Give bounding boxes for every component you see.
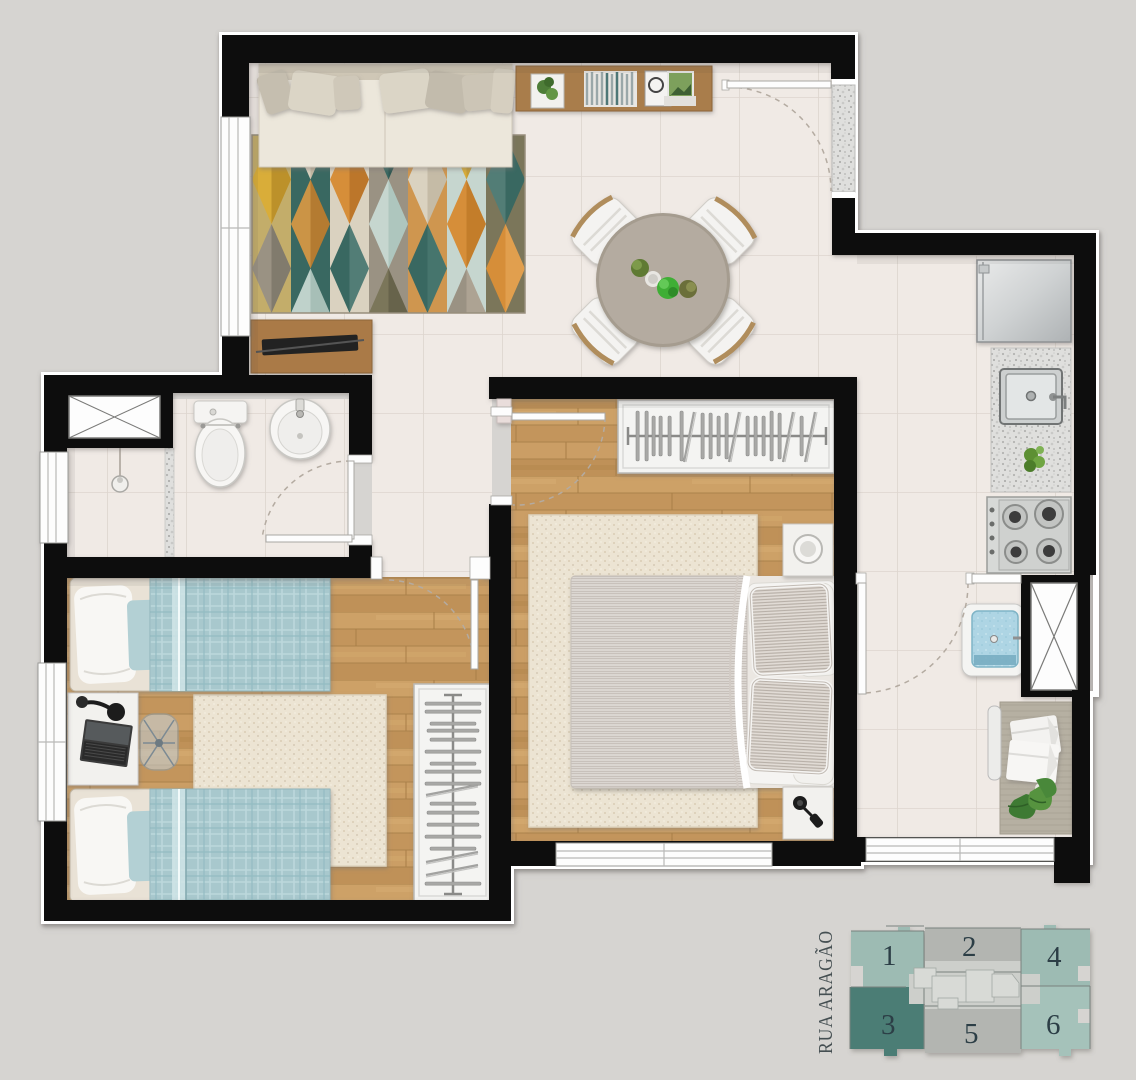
- svg-text:6: 6: [1046, 1009, 1061, 1041]
- svg-text:3: 3: [881, 1009, 896, 1041]
- svg-text:4: 4: [1047, 941, 1062, 973]
- svg-text:1: 1: [882, 940, 897, 972]
- svg-text:5: 5: [964, 1018, 979, 1050]
- svg-text:RUA ARAGÃO: RUA ARAGÃO: [813, 930, 837, 1054]
- svg-text:2: 2: [962, 931, 977, 963]
